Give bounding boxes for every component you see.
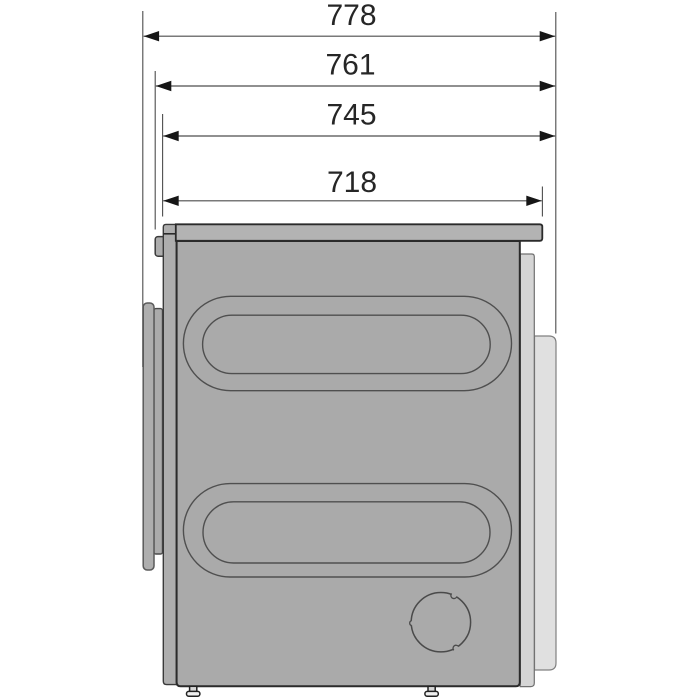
svg-text:761: 761 bbox=[325, 49, 375, 82]
svg-text:778: 778 bbox=[326, 0, 376, 32]
svg-text:745: 745 bbox=[326, 99, 376, 132]
svg-text:718: 718 bbox=[327, 166, 377, 199]
